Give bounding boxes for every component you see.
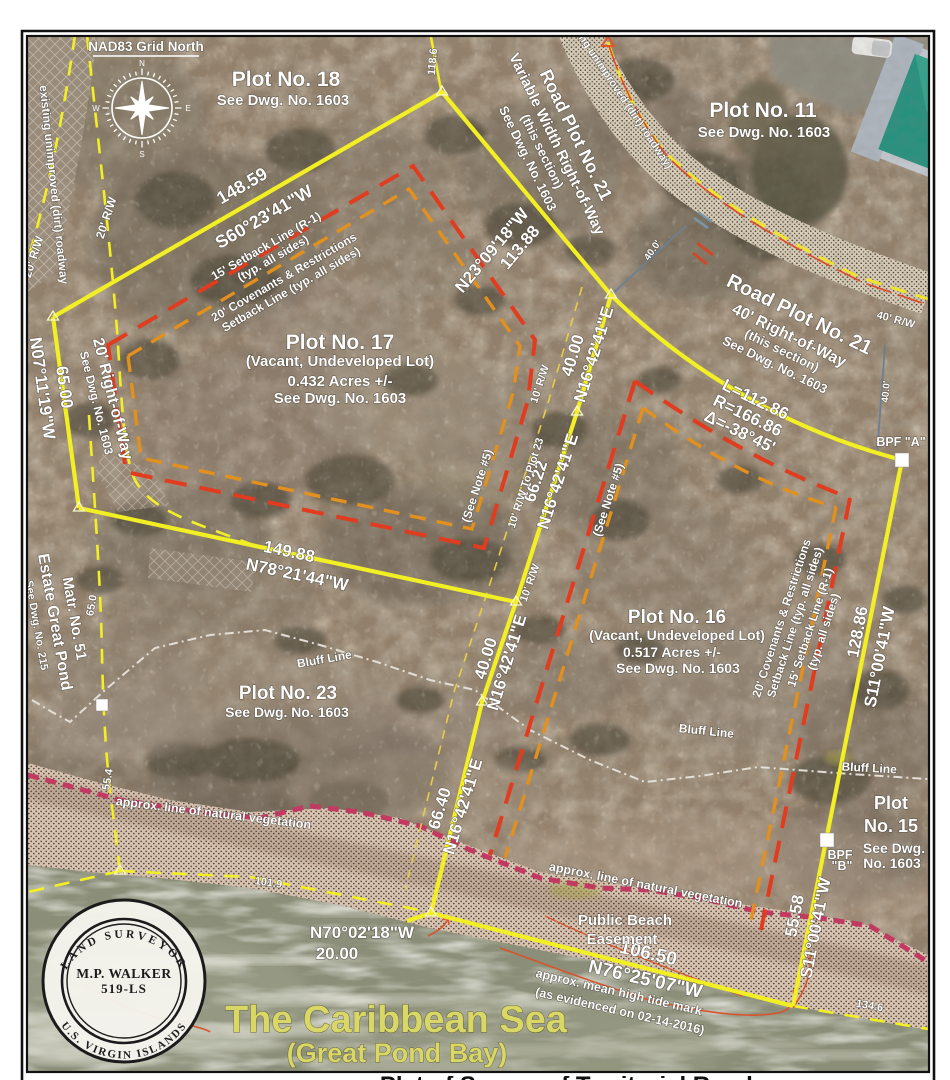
- svg-text:See Dwg. No. 1603: See Dwg. No. 1603: [274, 390, 407, 407]
- svg-text:(Vacant, Undeveloped Lot): (Vacant, Undeveloped Lot): [246, 353, 434, 370]
- svg-text:Plot: Plot: [874, 793, 908, 813]
- svg-text:40.0': 40.0': [880, 380, 893, 403]
- svg-text:(Vacant, Undeveloped Lot): (Vacant, Undeveloped Lot): [589, 627, 765, 643]
- svg-text:(Great Pond Bay): (Great Pond Bay): [287, 1038, 508, 1068]
- svg-text:20.00: 20.00: [316, 944, 359, 963]
- svg-text:M.P. WALKER: M.P. WALKER: [76, 966, 171, 981]
- svg-text:N70°02'18"W: N70°02'18"W: [310, 923, 415, 942]
- svg-text:See Dwg. No. 1603: See Dwg. No. 1603: [698, 124, 831, 141]
- svg-text:See Dwg.: See Dwg.: [863, 840, 925, 856]
- svg-text:Plot No. 11: Plot No. 11: [709, 99, 817, 122]
- svg-text:N: N: [139, 59, 145, 68]
- svg-text:519-LS: 519-LS: [101, 981, 147, 996]
- svg-text:"B": "B": [832, 859, 853, 873]
- svg-text:Plat of Survey of Territorial: Plat of Survey of Territorial Roads: [380, 1072, 766, 1080]
- svg-text:NAD83 Grid North: NAD83 Grid North: [88, 39, 204, 54]
- svg-text:Plot No. 23: Plot No. 23: [239, 683, 337, 704]
- svg-text:S: S: [139, 150, 144, 159]
- svg-text:See Dwg. No. 1603: See Dwg. No. 1603: [217, 92, 350, 109]
- svg-text:Plot No. 17: Plot No. 17: [286, 331, 395, 354]
- svg-text:BPF "A": BPF "A": [876, 435, 925, 449]
- svg-text:See Dwg. No. 1603: See Dwg. No. 1603: [225, 704, 349, 720]
- svg-text:E: E: [185, 104, 190, 113]
- svg-text:Easement: Easement: [587, 931, 658, 948]
- svg-text:Plot No. 18: Plot No. 18: [232, 68, 341, 91]
- svg-text:118.6: 118.6: [426, 48, 440, 76]
- svg-text:See Dwg. No. 1603: See Dwg. No. 1603: [616, 660, 740, 676]
- svg-text:Bluff Line: Bluff Line: [841, 760, 897, 777]
- svg-text:No. 15: No. 15: [864, 816, 918, 836]
- svg-text:0.517 Acres +/-: 0.517 Acres +/-: [623, 644, 721, 660]
- svg-text:The Caribbean Sea: The Caribbean Sea: [225, 999, 568, 1041]
- svg-text:Public Beach: Public Beach: [578, 912, 672, 929]
- svg-text:0.432 Acres +/-: 0.432 Acres +/-: [288, 373, 393, 390]
- svg-text:Plot No. 16: Plot No. 16: [628, 607, 726, 628]
- svg-text:W: W: [92, 104, 100, 113]
- svg-text:No. 1603: No. 1603: [863, 855, 921, 871]
